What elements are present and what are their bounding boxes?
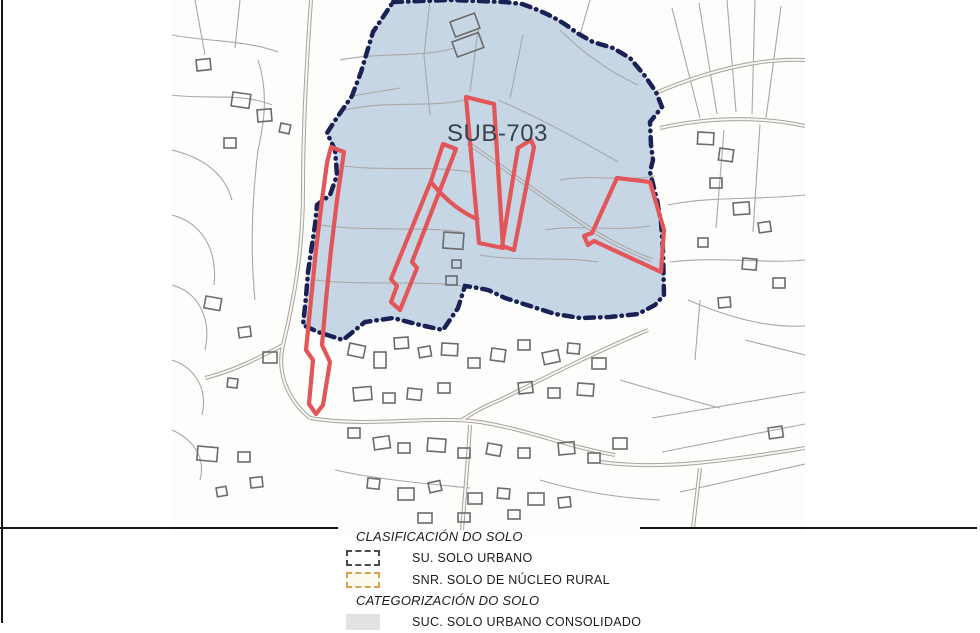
- legend-item-su: SU. SOLO URBANO: [346, 547, 746, 569]
- page-frame-left-line: [1, 0, 3, 623]
- legend-item-snr: SNR. SOLO DE NÚCLEO RURAL: [346, 569, 746, 591]
- legend-label-urbano-consolidado: SUC. SOLO URBANO CONSOLIDADO: [412, 615, 641, 629]
- legend-swatch-urbano-consolidado: [346, 614, 380, 630]
- legend-section-clasificacion-title: CLASIFICACIÓN DO SOLO: [356, 529, 746, 544]
- legend-label-nucleo-rural: SNR. SOLO DE NÚCLEO RURAL: [412, 573, 610, 587]
- legend-item-suc: SUC. SOLO URBANO CONSOLIDADO: [346, 611, 746, 633]
- page-frame-bottom-line-left: [0, 527, 338, 529]
- legend-swatch-nucleo-rural: [346, 572, 380, 588]
- legend: CLASIFICACIÓN DO SOLO SU. SOLO URBANO SN…: [346, 528, 746, 633]
- zone-label: SUB-703: [447, 120, 548, 147]
- legend-swatch-solo-urbano: [346, 550, 380, 566]
- legend-label-solo-urbano: SU. SOLO URBANO: [412, 551, 533, 565]
- legend-section-categorizacion-title: CATEGORIZACIÓN DO SOLO: [356, 593, 746, 608]
